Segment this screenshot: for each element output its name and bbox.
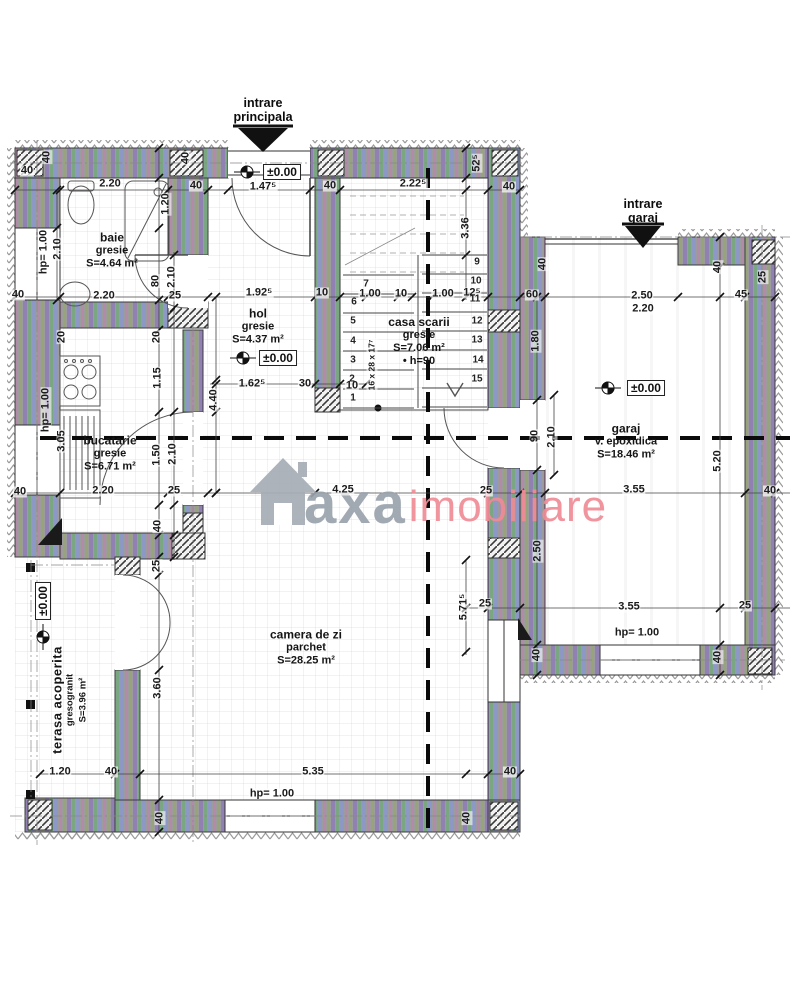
section-lines (40, 168, 790, 832)
terrace-post (26, 700, 35, 709)
stove (60, 356, 100, 406)
toilet (68, 186, 94, 224)
floor-plan-drawing (0, 0, 800, 986)
terrace-post (26, 563, 35, 572)
floor-plan-page: axa imobiliare intrare principala intrar… (0, 0, 800, 986)
walls-layer (15, 148, 775, 832)
door-swings (100, 178, 504, 670)
terrace-post (26, 790, 35, 799)
